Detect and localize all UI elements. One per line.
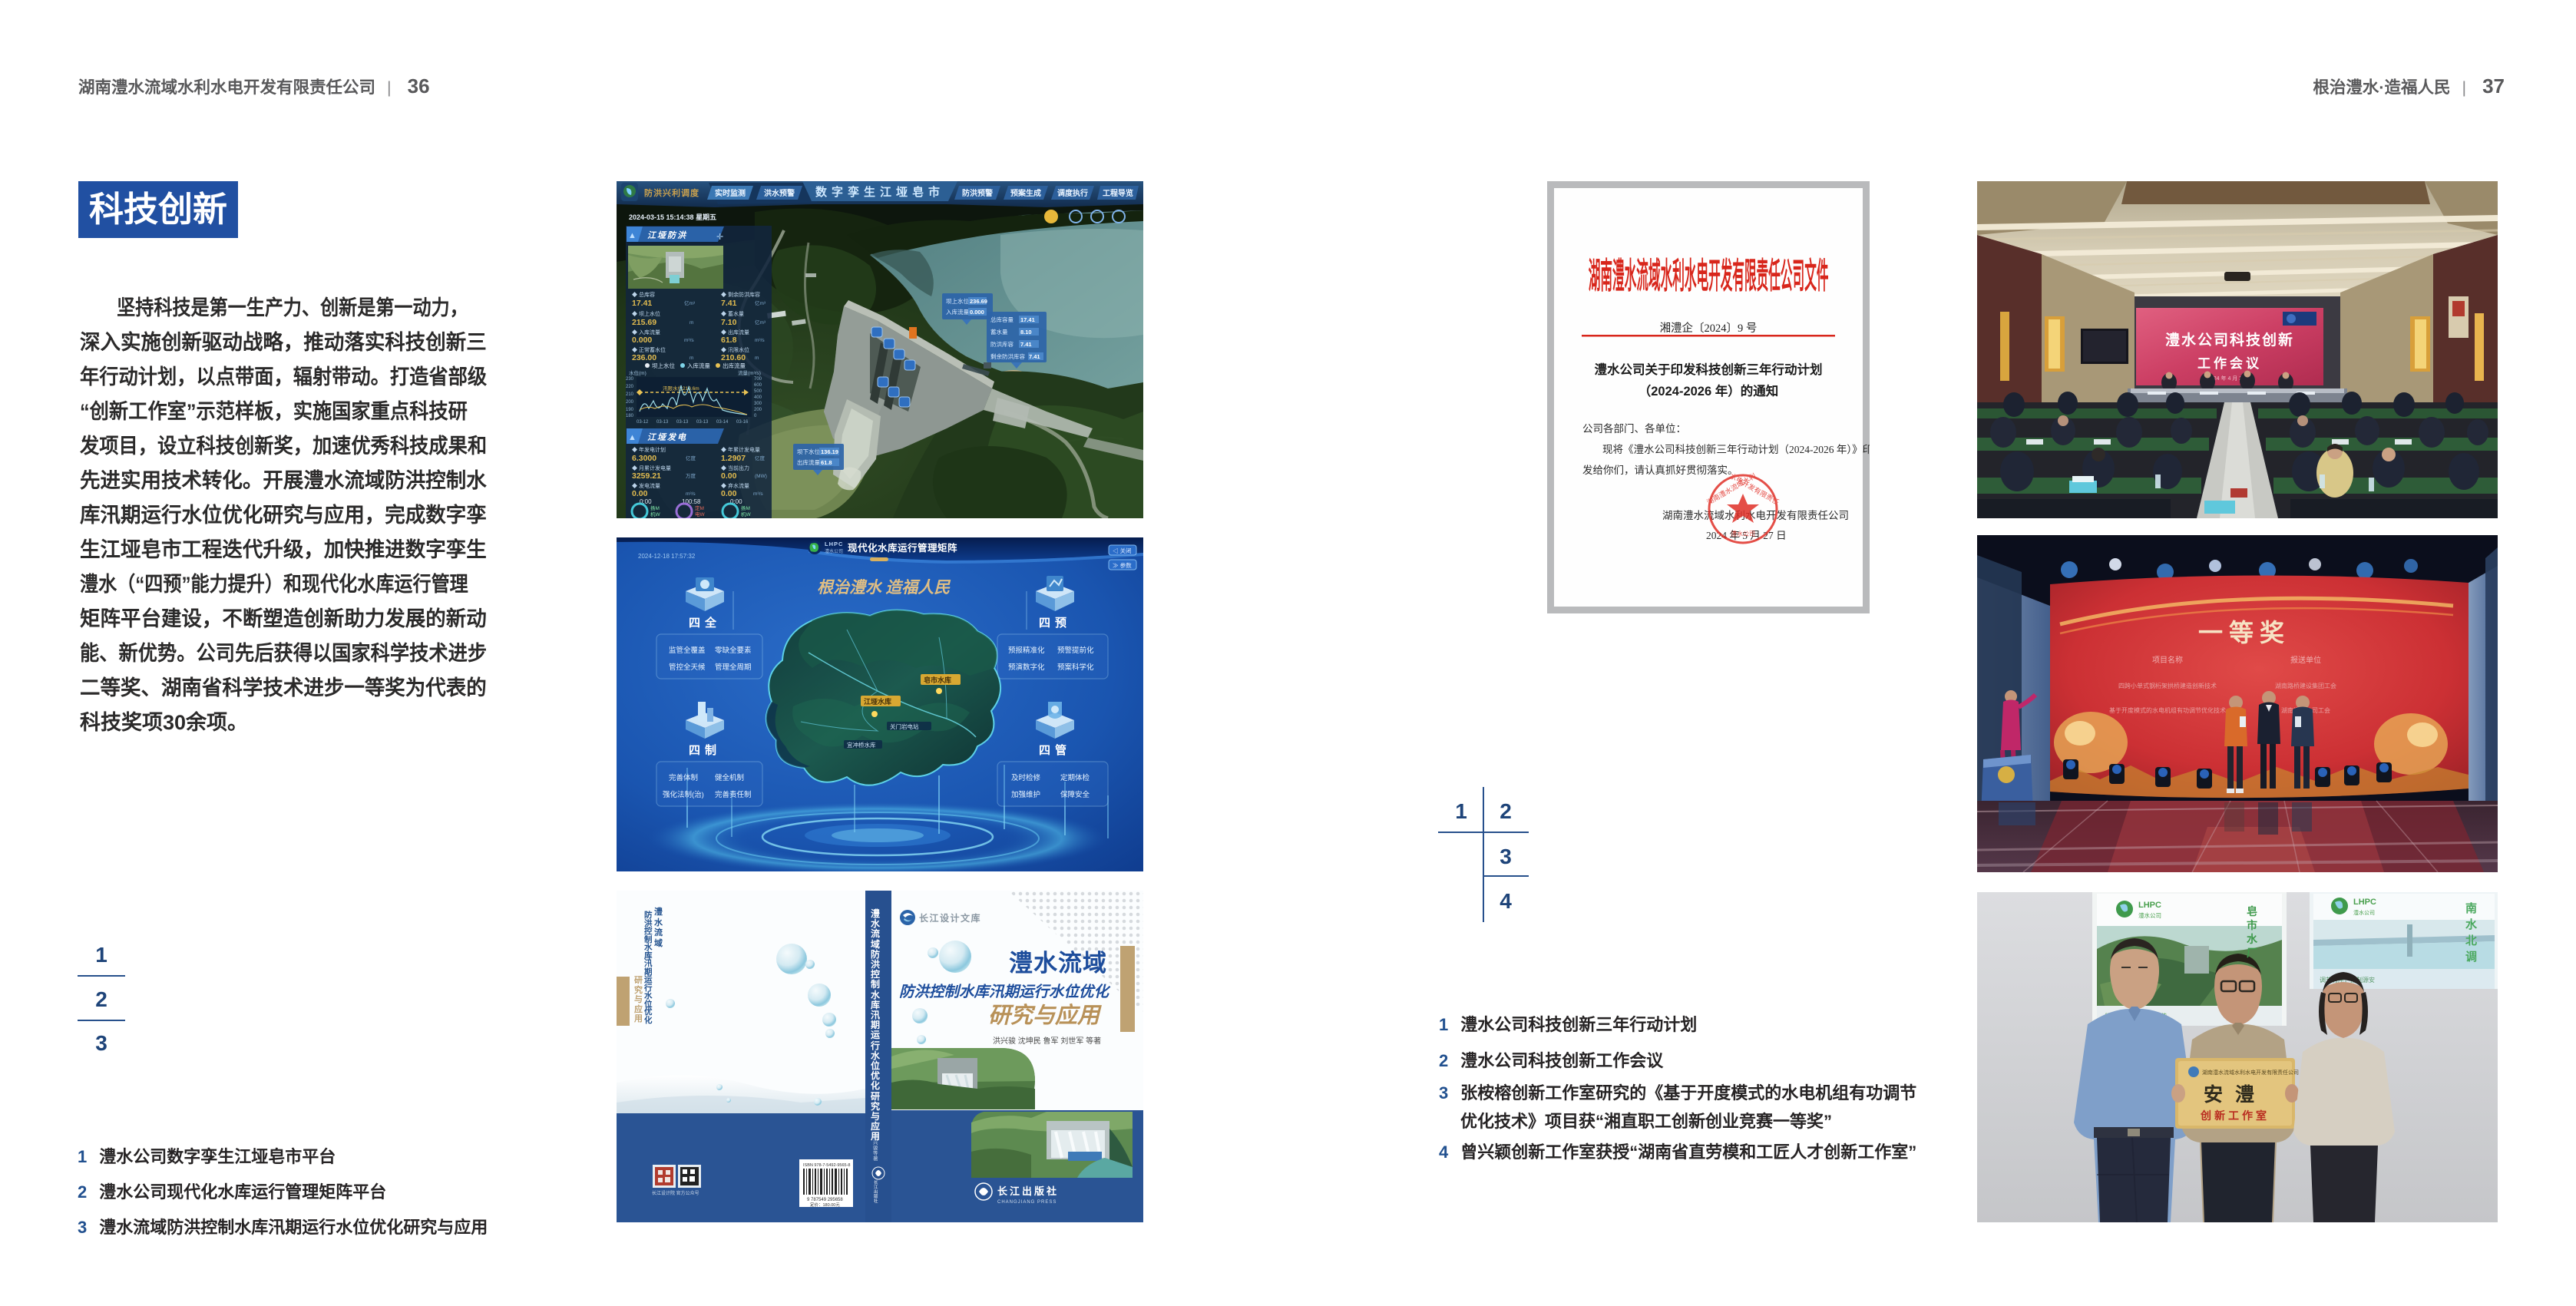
svg-text:LHPC: LHPC bbox=[2353, 898, 2376, 907]
svg-text:m³/s: m³/s bbox=[684, 338, 694, 343]
svg-text:工程导览: 工程导览 bbox=[1103, 188, 1133, 198]
svg-text:9 787549 295658: 9 787549 295658 bbox=[807, 1198, 843, 1202]
svg-text:0.00: 0.00 bbox=[632, 489, 648, 498]
svg-text:预案生成: 预案生成 bbox=[1010, 188, 1041, 198]
svg-text:洪水预警: 洪水预警 bbox=[764, 188, 795, 198]
svg-text:亿m³: 亿m³ bbox=[684, 299, 696, 306]
svg-text:1.2907: 1.2907 bbox=[721, 454, 746, 463]
svg-text:根治澧水 造福人民: 根治澧水 造福人民 bbox=[817, 578, 951, 597]
svg-text:◆ 坝上水位: ◆ 坝上水位 bbox=[632, 310, 660, 317]
svg-text:湖南澧水流域水利水电开发有限责任公司文件: 湖南澧水流域水利水电开发有限责任公司文件 bbox=[1589, 257, 1829, 296]
svg-text:2024-03-15 15:14:38 星期五: 2024-03-15 15:14:38 星期五 bbox=[629, 213, 716, 221]
svg-text:澧水公司科技创新: 澧水公司科技创新 bbox=[2165, 331, 2294, 349]
svg-text:亿度: 亿度 bbox=[686, 455, 696, 461]
svg-text:创新工作室: 创新工作室 bbox=[2200, 1109, 2270, 1122]
svg-text:电W: 电W bbox=[695, 511, 706, 517]
svg-text:◆ 月累计发电量: ◆ 月累计发电量 bbox=[632, 465, 671, 471]
svg-text:m: m bbox=[689, 355, 693, 361]
svg-text:报送单位: 报送单位 bbox=[2290, 655, 2321, 665]
svg-text:坝下水位: 坝下水位 bbox=[797, 448, 820, 455]
svg-text:136.19: 136.19 bbox=[821, 448, 838, 455]
svg-text:调度执行: 调度执行 bbox=[1057, 188, 1088, 198]
svg-text:200: 200 bbox=[626, 400, 634, 405]
svg-text:及时检修: 及时检修 bbox=[1011, 773, 1041, 782]
svg-text:关门岩电站: 关门岩电站 bbox=[890, 722, 919, 730]
svg-text:ISBN 978-7-5492-9565-8: ISBN 978-7-5492-9565-8 bbox=[803, 1163, 850, 1168]
svg-text:数字孪生江垭皂市: 数字孪生江垭皂市 bbox=[815, 185, 944, 199]
svg-text:坝上水位: 坝上水位 bbox=[652, 362, 675, 369]
svg-text:300: 300 bbox=[754, 402, 762, 406]
svg-text:防洪库容: 防洪库容 bbox=[990, 340, 1014, 348]
svg-text:长江设计院 官方公众号: 长江设计院 官方公众号 bbox=[652, 1190, 699, 1196]
svg-text:长江出版社: 长江出版社 bbox=[997, 1185, 1059, 1197]
svg-text:皂市水库: 皂市水库 bbox=[924, 676, 951, 684]
svg-text:17.41: 17.41 bbox=[632, 299, 652, 308]
svg-text:预案科学化: 预案科学化 bbox=[1057, 663, 1094, 672]
svg-text:17.41: 17.41 bbox=[1020, 316, 1035, 323]
svg-text:0.00: 0.00 bbox=[721, 489, 737, 498]
svg-text:7.41: 7.41 bbox=[1020, 341, 1032, 348]
svg-text:公司各部门、各单位：: 公司各部门、各单位： bbox=[1582, 423, 1686, 435]
svg-text:6.3000: 6.3000 bbox=[632, 454, 656, 463]
svg-text:加强维护: 加强维护 bbox=[1011, 790, 1040, 799]
svg-text:水位(m): 水位(m) bbox=[629, 369, 646, 376]
svg-text:管控全天候: 管控全天候 bbox=[669, 663, 706, 672]
svg-text:03-13: 03-13 bbox=[676, 420, 689, 425]
svg-text:四管: 四管 bbox=[1039, 743, 1071, 757]
svg-text:澧水公司: 澧水公司 bbox=[1731, 530, 1755, 537]
svg-text:澧水公司关于印发科技创新三年行动计划: 澧水公司关于印发科技创新三年行动计划 bbox=[1595, 362, 1823, 377]
svg-text:一等奖: 一等奖 bbox=[2198, 619, 2290, 646]
svg-text:定M: 定M bbox=[695, 504, 704, 511]
svg-text:出库流量: 出库流量 bbox=[723, 362, 746, 369]
svg-text:江垭水库: 江垭水库 bbox=[864, 697, 891, 706]
svg-text:管理全周期: 管理全周期 bbox=[715, 663, 752, 672]
svg-text:3259.21: 3259.21 bbox=[632, 471, 661, 481]
svg-text:700: 700 bbox=[754, 377, 762, 382]
svg-text:03-12: 03-12 bbox=[637, 420, 649, 425]
svg-text:江垭防洪: 江垭防洪 bbox=[647, 230, 687, 240]
svg-text:◆ 当前出力: ◆ 当前出力 bbox=[721, 465, 749, 471]
svg-text:定期体检: 定期体检 bbox=[1060, 773, 1090, 782]
svg-text:湘澧企〔2024〕9 号: 湘澧企〔2024〕9 号 bbox=[1660, 321, 1758, 335]
svg-text:236.69: 236.69 bbox=[970, 298, 987, 305]
svg-text:◁ 关闭: ◁ 关闭 bbox=[1113, 547, 1132, 554]
svg-text:江垭发电: 江垭发电 bbox=[647, 432, 687, 442]
svg-text:61.8: 61.8 bbox=[721, 336, 737, 345]
svg-text:LHPC: LHPC bbox=[825, 541, 843, 547]
svg-text:完善体制: 完善体制 bbox=[669, 773, 698, 782]
svg-text:m³/s: m³/s bbox=[686, 491, 696, 497]
svg-text:湖南路桥建设集团工会: 湖南路桥建设集团工会 bbox=[2275, 682, 2336, 689]
svg-text:LHPC: LHPC bbox=[2138, 901, 2161, 910]
svg-text:600: 600 bbox=[754, 383, 762, 388]
svg-text:◆ 蓄水量: ◆ 蓄水量 bbox=[721, 310, 744, 317]
svg-text:零缺全要素: 零缺全要素 bbox=[715, 646, 752, 655]
svg-text:现将《澧水公司科技创新三年行动计划（2024-2026 年）: 现将《澧水公司科技创新三年行动计划（2024-2026 年）》印 bbox=[1602, 444, 1870, 455]
svg-text:236.00: 236.00 bbox=[632, 353, 656, 362]
svg-text:湖南澧水流域水利水电开发有限责任公司: 湖南澧水流域水利水电开发有限责任公司 bbox=[1662, 510, 1849, 521]
svg-text:210.60: 210.60 bbox=[721, 353, 746, 362]
svg-text:m: m bbox=[755, 355, 759, 361]
svg-text:现代化水库运行管理矩阵: 现代化水库运行管理矩阵 bbox=[848, 542, 957, 554]
svg-text:宜冲桥水库: 宜冲桥水库 bbox=[847, 741, 876, 749]
svg-text:工作会议: 工作会议 bbox=[2197, 355, 2262, 371]
svg-text:◆ 剩余防洪库容: ◆ 剩余防洪库容 bbox=[721, 291, 760, 298]
svg-text:03-16: 03-16 bbox=[736, 420, 749, 425]
svg-text:7.41: 7.41 bbox=[721, 299, 737, 308]
svg-text:◆ 总库容: ◆ 总库容 bbox=[632, 291, 655, 298]
svg-text:剩余防洪库容: 剩余防洪库容 bbox=[990, 352, 1025, 360]
svg-text:0.000: 0.000 bbox=[970, 309, 984, 316]
svg-text:长江设计文库: 长江设计文库 bbox=[919, 912, 981, 924]
svg-text:入库流量: 入库流量 bbox=[687, 362, 710, 369]
svg-text:◆ 正常蓄水位: ◆ 正常蓄水位 bbox=[632, 346, 666, 353]
svg-text:澧水流域: 澧水流域 bbox=[1009, 950, 1107, 977]
svg-text:入库流量: 入库流量 bbox=[946, 308, 969, 316]
svg-text:机W: 机W bbox=[650, 511, 661, 517]
svg-text:防洪控制水库汛期运行水位优化: 防洪控制水库汛期运行水位优化 bbox=[899, 984, 1112, 1000]
svg-text:预报精准化: 预报精准化 bbox=[1008, 646, 1045, 655]
svg-text:定价：180.00元: 定价：180.00元 bbox=[810, 1202, 840, 1208]
svg-text:扬M: 扬M bbox=[741, 504, 750, 511]
svg-text:03-13: 03-13 bbox=[656, 420, 669, 425]
svg-text:亿m³: 亿m³ bbox=[755, 299, 766, 306]
svg-text:保障安全: 保障安全 bbox=[1060, 790, 1090, 799]
svg-text:四制: 四制 bbox=[689, 743, 721, 757]
svg-text:(MW): (MW) bbox=[755, 474, 767, 479]
svg-text:03-13: 03-13 bbox=[696, 420, 709, 425]
svg-text:200: 200 bbox=[754, 408, 762, 412]
svg-text:7.41: 7.41 bbox=[1029, 353, 1040, 360]
svg-text:出库流量: 出库流量 bbox=[797, 458, 820, 466]
svg-text:500: 500 bbox=[754, 389, 762, 394]
svg-text:2024-12-18 17:57:32: 2024-12-18 17:57:32 bbox=[638, 553, 696, 560]
svg-text:湖南澧水流域水利水电开发有限责任公司: 湖南澧水流域水利水电开发有限责任公司 bbox=[2202, 1069, 2299, 1076]
svg-text:扬M: 扬M bbox=[650, 504, 660, 511]
svg-text:预警提前化: 预警提前化 bbox=[1057, 646, 1094, 655]
svg-text:190: 190 bbox=[626, 408, 634, 412]
svg-text:▲: ▲ bbox=[628, 231, 637, 240]
svg-text:发给你们，请认真抓好贯彻落实。: 发给你们，请认真抓好贯彻落实。 bbox=[1582, 465, 1738, 476]
svg-text:实时监测: 实时监测 bbox=[715, 188, 746, 198]
svg-text:完善责任制: 完善责任制 bbox=[715, 790, 752, 799]
svg-text:215.69: 215.69 bbox=[632, 318, 656, 327]
svg-text:防洪兴利调度: 防洪兴利调度 bbox=[644, 187, 699, 198]
svg-text:监管全覆盖: 监管全覆盖 bbox=[669, 646, 706, 655]
svg-text:✛: ✛ bbox=[716, 233, 723, 242]
svg-text:CHANGJIANG PRESS: CHANGJIANG PRESS bbox=[997, 1200, 1057, 1205]
svg-text:研究与应用: 研究与应用 bbox=[988, 1003, 1102, 1028]
svg-text:机W: 机W bbox=[741, 511, 752, 517]
svg-text:澧水公司: 澧水公司 bbox=[825, 548, 843, 554]
svg-text:基于开度模式的水电机组有功调节优化技术: 基于开度模式的水电机组有功调节优化技术 bbox=[2109, 706, 2226, 714]
svg-text:蓄水量: 蓄水量 bbox=[990, 328, 1008, 336]
svg-text:◆ 弃水流量: ◆ 弃水流量 bbox=[721, 482, 749, 489]
svg-text:亿m³: 亿m³ bbox=[755, 319, 766, 326]
svg-text:180: 180 bbox=[626, 414, 634, 418]
svg-text:坝上水位: 坝上水位 bbox=[946, 297, 969, 305]
svg-text:项目名称: 项目名称 bbox=[2152, 655, 2183, 665]
svg-text:流量(m³/s): 流量(m³/s) bbox=[738, 369, 761, 376]
svg-text:◆ 汛限水位: ◆ 汛限水位 bbox=[721, 346, 749, 353]
svg-text:61.8: 61.8 bbox=[821, 459, 832, 466]
svg-text:400: 400 bbox=[754, 395, 762, 400]
svg-text:210: 210 bbox=[626, 392, 634, 397]
svg-text:03-14: 03-14 bbox=[716, 420, 729, 425]
svg-text:m: m bbox=[689, 320, 693, 326]
svg-text:◆ 出库流量: ◆ 出库流量 bbox=[721, 329, 749, 336]
svg-text:7.10: 7.10 bbox=[721, 318, 737, 327]
svg-text:m³/s: m³/s bbox=[755, 338, 765, 343]
svg-text:▲: ▲ bbox=[628, 433, 637, 442]
svg-text:强化法制(治): 强化法制(治) bbox=[663, 790, 704, 799]
svg-text:≫ 参数: ≫ 参数 bbox=[1113, 561, 1132, 569]
svg-text:预演数字化: 预演数字化 bbox=[1008, 663, 1045, 672]
svg-text:安澧: 安澧 bbox=[2204, 1083, 2267, 1106]
svg-text:总库容量: 总库容量 bbox=[990, 316, 1014, 323]
svg-text:亿度: 亿度 bbox=[755, 455, 766, 461]
svg-text:◆ 入库流量: ◆ 入库流量 bbox=[632, 329, 660, 336]
svg-text:澧水公司: 澧水公司 bbox=[2353, 909, 2375, 916]
svg-text:0.000: 0.000 bbox=[632, 336, 652, 345]
svg-text:m³/s: m³/s bbox=[753, 491, 763, 497]
svg-text:四全: 四全 bbox=[689, 616, 721, 630]
svg-text:（2024-2026 年）的通知: （2024-2026 年）的通知 bbox=[1639, 383, 1779, 398]
svg-text:四预: 四预 bbox=[1039, 617, 1071, 630]
svg-text:防洪预警: 防洪预警 bbox=[962, 188, 993, 198]
svg-text:220: 220 bbox=[626, 385, 634, 389]
svg-text:0.00: 0.00 bbox=[721, 471, 737, 481]
svg-text:四跨小单式钢桁架拱桥建造创新技术: 四跨小单式钢桁架拱桥建造创新技术 bbox=[2118, 682, 2217, 689]
svg-text:◆ 发电流量: ◆ 发电流量 bbox=[632, 482, 660, 489]
svg-text:◆ 年累计发电量: ◆ 年累计发电量 bbox=[721, 446, 760, 453]
svg-text:◆ 年发电计划: ◆ 年发电计划 bbox=[632, 446, 666, 453]
svg-text:万度: 万度 bbox=[686, 472, 696, 479]
svg-text:230: 230 bbox=[626, 377, 634, 382]
svg-text:洪兴骏 沈坤民 鲁军 刘世军 等著: 洪兴骏 沈坤民 鲁军 刘世军 等著 bbox=[993, 1036, 1101, 1046]
svg-text:澧水公司: 澧水公司 bbox=[2138, 911, 2161, 919]
svg-text:健全机制: 健全机制 bbox=[715, 773, 744, 782]
svg-text:8.10: 8.10 bbox=[1020, 329, 1032, 336]
